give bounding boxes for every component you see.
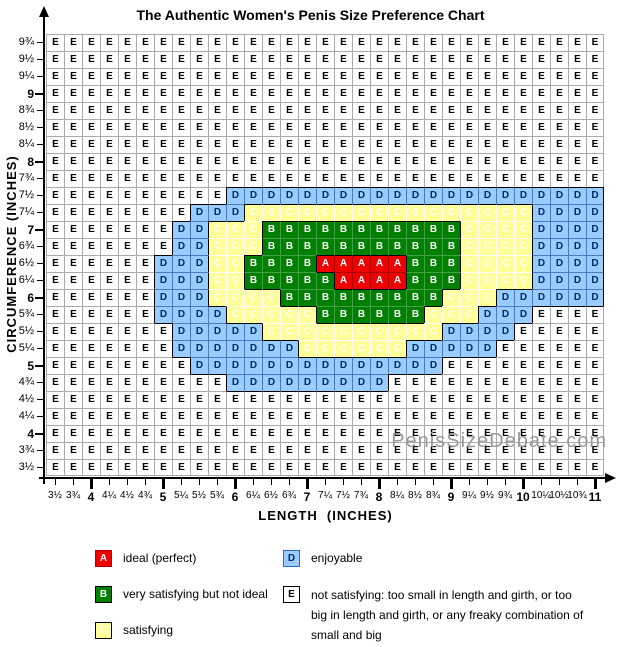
grid-cell: E [136, 442, 154, 459]
legend-label-not-satisfying: not satisfying: too small in length and … [311, 585, 589, 645]
grid-cell: C [460, 255, 478, 272]
grid-cell: E [136, 391, 154, 408]
grid-cell: C [478, 204, 496, 221]
grid-cell: E [316, 459, 334, 476]
grid-cell: E [136, 459, 154, 476]
grid-cell: E [352, 136, 370, 153]
grid-cell: E [82, 221, 100, 238]
grid-cell: E [550, 153, 568, 170]
grid-cell: E [64, 221, 82, 238]
grid-cell: E [442, 170, 460, 187]
grid-cell: E [136, 68, 154, 85]
grid-cell: E [82, 357, 100, 374]
grid-cell: D [370, 187, 388, 204]
grid-cell: E [298, 391, 316, 408]
grid-cell: E [442, 34, 460, 51]
grid-cell: E [82, 68, 100, 85]
grid-cell: E [46, 357, 64, 374]
grid-cell: E [316, 408, 334, 425]
grid-cell: E [496, 85, 514, 102]
grid-cell: D [550, 187, 568, 204]
grid-cell: D [280, 340, 298, 357]
grid-cell: B [280, 238, 298, 255]
grid-cell: E [64, 442, 82, 459]
grid-cell: E [388, 119, 406, 136]
grid-cell: E [370, 119, 388, 136]
grid-cell: E [298, 442, 316, 459]
grid-cell: E [136, 170, 154, 187]
y-tick [37, 331, 44, 332]
x-tick [469, 479, 470, 485]
grid-cell: D [190, 357, 208, 374]
grid-cell: D [226, 204, 244, 221]
grid-cell: E [406, 119, 424, 136]
grid-cell: E [370, 34, 388, 51]
grid-cell: E [316, 68, 334, 85]
grid-cell: E [46, 408, 64, 425]
grid-cell: E [406, 170, 424, 187]
grid-cell: C [460, 238, 478, 255]
grid-cell: E [190, 119, 208, 136]
grid-cell: E [388, 459, 406, 476]
x-tick [162, 479, 165, 489]
grid-cell: E [118, 68, 136, 85]
grid-cell: E [208, 34, 226, 51]
grid-cell: E [118, 170, 136, 187]
grid-cell: D [208, 204, 226, 221]
grid-cell: C [226, 221, 244, 238]
grid-cell: E [154, 374, 172, 391]
grid-cell: E [82, 153, 100, 170]
grid-cell: D [424, 340, 442, 357]
grid-cell: E [244, 425, 262, 442]
grid-cell: B [406, 238, 424, 255]
x-tick [594, 479, 597, 489]
grid-cell: E [460, 119, 478, 136]
y-tick [37, 178, 44, 179]
grid-cell: E [136, 153, 154, 170]
grid-cell: E [172, 187, 190, 204]
grid-cell: B [280, 289, 298, 306]
grid-cell: E [244, 408, 262, 425]
grid-cell: D [532, 289, 550, 306]
grid-cell: C [442, 306, 460, 323]
y-tick [37, 416, 44, 417]
grid-cell: B [406, 221, 424, 238]
grid-cell: E [82, 340, 100, 357]
grid-cell: E [262, 68, 280, 85]
grid-cell: E [262, 85, 280, 102]
grid-cell: E [388, 170, 406, 187]
grid-cell: E [478, 136, 496, 153]
grid-cell: B [298, 289, 316, 306]
grid-cell: B [280, 221, 298, 238]
grid-cell: B [298, 255, 316, 272]
grid-cell: E [496, 51, 514, 68]
grid-cell: E [280, 153, 298, 170]
grid-cell: E [370, 442, 388, 459]
grid-cell: E [82, 51, 100, 68]
grid-cell: E [568, 102, 586, 119]
y-tick-label: 4½ [0, 393, 34, 407]
grid-cell: E [406, 374, 424, 391]
y-tick [35, 93, 44, 95]
grid-cell: E [64, 272, 82, 289]
grid-cell: B [316, 306, 334, 323]
grid-cell: E [64, 425, 82, 442]
grid-cell: E [64, 187, 82, 204]
grid-cell: E [442, 85, 460, 102]
grid-cell: E [172, 102, 190, 119]
grid-cell: B [298, 272, 316, 289]
grid-cell: E [64, 374, 82, 391]
grid-cell: E [442, 136, 460, 153]
grid-cell: E [46, 340, 64, 357]
y-tick [37, 127, 44, 128]
grid-cell: D [478, 340, 496, 357]
y-tick [37, 280, 44, 281]
grid-cell: E [100, 187, 118, 204]
grid-cell: E [460, 459, 478, 476]
grid-cell: B [388, 306, 406, 323]
grid-cell: E [208, 187, 226, 204]
y-tick [35, 433, 44, 435]
grid-cell: E [82, 170, 100, 187]
grid-cell: E [64, 289, 82, 306]
grid-cell: E [100, 34, 118, 51]
grid-cell: E [568, 306, 586, 323]
grid-cell: C [352, 323, 370, 340]
x-tick [145, 479, 146, 485]
grid-cell: C [334, 323, 352, 340]
grid-cell: E [424, 408, 442, 425]
grid-cell: E [496, 459, 514, 476]
grid-cell: E [316, 136, 334, 153]
grid-cell: D [406, 187, 424, 204]
grid-cell: E [190, 102, 208, 119]
grid-cell: A [370, 272, 388, 289]
grid-cell: E [172, 170, 190, 187]
grid-cell: E [460, 85, 478, 102]
grid-cell: E [388, 374, 406, 391]
grid-cell: E [280, 136, 298, 153]
grid-cell: E [46, 238, 64, 255]
grid-cell: E [208, 459, 226, 476]
grid-cell: C [226, 306, 244, 323]
grid-cell: E [478, 408, 496, 425]
grid-cell: E [514, 102, 532, 119]
grid-cell: E [352, 85, 370, 102]
grid-cell: E [478, 170, 496, 187]
grid-cell: E [82, 136, 100, 153]
grid-cell: E [64, 306, 82, 323]
grid-cell: E [550, 119, 568, 136]
grid-cell: E [586, 51, 604, 68]
grid-cell: E [532, 170, 550, 187]
grid-cell: E [100, 425, 118, 442]
grid-cell: E [532, 85, 550, 102]
y-tick-label: 3¾ [0, 444, 34, 458]
grid-cell: E [532, 391, 550, 408]
grid-cell: D [586, 255, 604, 272]
grid-cell: D [460, 340, 478, 357]
grid-cell: E [370, 425, 388, 442]
grid-cell: E [568, 323, 586, 340]
grid-cell: E [568, 68, 586, 85]
x-tick [415, 479, 416, 485]
grid-cell: E [46, 374, 64, 391]
grid-cell: E [388, 85, 406, 102]
y-tick-label: 4¼ [0, 410, 34, 424]
grid-cell: D [460, 323, 478, 340]
grid-cell: E [100, 204, 118, 221]
grid-cell: E [154, 425, 172, 442]
grid-cell: E [208, 102, 226, 119]
grid-cell: E [298, 119, 316, 136]
grid-cell: E [46, 119, 64, 136]
grid-cell: E [550, 136, 568, 153]
watermark: PenisSizeDebate.com [391, 430, 607, 453]
grid-cell: C [352, 204, 370, 221]
grid-cell: E [334, 136, 352, 153]
grid-cell: E [82, 289, 100, 306]
grid-cell: E [514, 68, 532, 85]
grid-cell: E [460, 170, 478, 187]
grid-cell: B [262, 255, 280, 272]
grid-cell: E [406, 153, 424, 170]
grid-cell: E [244, 102, 262, 119]
grid-cell: E [568, 119, 586, 136]
legend-label-enjoyable: enjoyable [311, 550, 362, 567]
grid-cell: E [586, 85, 604, 102]
grid-cell: E [118, 153, 136, 170]
grid-cell: D [298, 374, 316, 391]
grid-cell: E [550, 357, 568, 374]
y-tick-label: 8¾ [0, 104, 34, 118]
grid-cell: E [532, 459, 550, 476]
grid-cell: E [442, 153, 460, 170]
grid-cell: E [82, 255, 100, 272]
grid-cell: E [514, 459, 532, 476]
y-tick [37, 450, 44, 451]
grid-cell: E [280, 459, 298, 476]
grid-cell: E [424, 51, 442, 68]
grid-cell: E [118, 51, 136, 68]
grid-cell: E [550, 374, 568, 391]
grid-cell: C [478, 255, 496, 272]
legend-swatch-d: D [283, 550, 300, 567]
grid-cell: C [460, 204, 478, 221]
y-tick [37, 382, 44, 383]
grid-cell: D [388, 357, 406, 374]
grid-cell: C [478, 289, 496, 306]
grid-cell: E [406, 85, 424, 102]
grid-cell: E [424, 102, 442, 119]
y-tick [37, 314, 44, 315]
grid-cell: E [136, 187, 154, 204]
grid-cell: B [424, 272, 442, 289]
grid-cell: C [316, 204, 334, 221]
grid-cell: E [496, 136, 514, 153]
grid-cell: E [298, 425, 316, 442]
grid-cell: E [100, 391, 118, 408]
grid-cell: E [154, 238, 172, 255]
grid-cell: E [478, 51, 496, 68]
grid-cell: E [190, 170, 208, 187]
grid-cell: E [298, 408, 316, 425]
grid-cell: C [460, 272, 478, 289]
grid-cell: E [190, 136, 208, 153]
grid-cell: B [352, 221, 370, 238]
y-tick-label: 9¼ [0, 70, 34, 84]
grid-cell: E [262, 136, 280, 153]
grid-cell: D [190, 255, 208, 272]
grid-cell: D [514, 306, 532, 323]
grid-cell: C [424, 204, 442, 221]
grid-cell: C [424, 306, 442, 323]
grid-cell: E [352, 170, 370, 187]
grid-cell: E [334, 170, 352, 187]
grid-cell: E [46, 255, 64, 272]
grid-cell: E [298, 459, 316, 476]
grid-cell: E [82, 187, 100, 204]
grid-cell: D [172, 221, 190, 238]
grid-cell: E [586, 408, 604, 425]
x-axis-arrow-right-icon [605, 473, 616, 483]
grid-cell: D [532, 187, 550, 204]
legend-label-ideal: ideal (perfect) [123, 550, 196, 567]
grid-cell: E [64, 459, 82, 476]
grid-cell: E [568, 170, 586, 187]
grid-cell: C [262, 306, 280, 323]
grid-cell: E [100, 340, 118, 357]
grid-cell: E [46, 85, 64, 102]
grid-cell: C [208, 238, 226, 255]
grid-cell: B [424, 238, 442, 255]
grid-cell: E [46, 221, 64, 238]
grid-cell: B [298, 221, 316, 238]
grid-cell: E [118, 289, 136, 306]
grid-cell: E [190, 442, 208, 459]
grid-cell: D [514, 187, 532, 204]
grid-cell: E [262, 408, 280, 425]
grid-cell: B [244, 272, 262, 289]
grid-cell: E [190, 187, 208, 204]
grid-cell: E [82, 306, 100, 323]
grid-cell: E [514, 357, 532, 374]
y-tick-label: 9¾ [0, 36, 34, 50]
y-tick [37, 263, 44, 264]
grid-cell: C [370, 340, 388, 357]
grid-cell: E [514, 323, 532, 340]
grid-cell: D [496, 323, 514, 340]
grid-cell: E [136, 85, 154, 102]
grid-cell: C [316, 340, 334, 357]
grid-cell: E [136, 323, 154, 340]
grid-cell: E [46, 68, 64, 85]
grid-cell: E [46, 442, 64, 459]
grid-cell: B [442, 221, 460, 238]
grid-cell: C [208, 289, 226, 306]
grid-cell: D [388, 187, 406, 204]
grid-cell: E [568, 51, 586, 68]
grid-cell: E [208, 85, 226, 102]
grid-cell: E [154, 153, 172, 170]
grid-cell: B [244, 255, 262, 272]
grid-cell: E [136, 102, 154, 119]
grid-cell: B [262, 221, 280, 238]
grid-cell: D [586, 204, 604, 221]
grid-cell: E [532, 374, 550, 391]
grid-cell: E [118, 408, 136, 425]
y-tick-label: 4 [0, 427, 34, 441]
grid-cell: E [118, 306, 136, 323]
grid-cell: D [352, 357, 370, 374]
grid-cell: D [424, 357, 442, 374]
grid-cell: E [550, 85, 568, 102]
grid-cell: E [82, 102, 100, 119]
y-tick-label: 9 [0, 87, 34, 101]
grid-cell: D [352, 374, 370, 391]
y-tick [37, 348, 44, 349]
grid-cell: C [244, 289, 262, 306]
grid-cell: C [406, 323, 424, 340]
grid-cell: C [388, 340, 406, 357]
grid-cell: E [316, 153, 334, 170]
grid-cell: E [334, 119, 352, 136]
grid-cell: D [532, 272, 550, 289]
grid-cell: B [388, 221, 406, 238]
grid-cell: E [154, 221, 172, 238]
grid-cell: D [496, 187, 514, 204]
grid-cell: D [586, 289, 604, 306]
grid-cell: E [136, 51, 154, 68]
grid-cell: E [226, 136, 244, 153]
grid-cell: E [496, 374, 514, 391]
grid-cell: E [82, 272, 100, 289]
grid-cell: E [172, 425, 190, 442]
grid-cell: E [46, 51, 64, 68]
grid-cell: E [118, 374, 136, 391]
grid-cell: D [568, 255, 586, 272]
grid-cell: D [496, 306, 514, 323]
grid-cell: E [460, 357, 478, 374]
grid-cell: E [64, 357, 82, 374]
grid-cell: C [280, 204, 298, 221]
grid-cell: E [190, 51, 208, 68]
grid-cell: E [334, 34, 352, 51]
grid-cell: D [226, 323, 244, 340]
grid-cell: B [280, 272, 298, 289]
grid-cell: E [316, 442, 334, 459]
x-tick [522, 479, 525, 489]
grid-cell: E [514, 85, 532, 102]
grid-cell: D [532, 204, 550, 221]
grid-cell: E [568, 34, 586, 51]
grid-cell: D [244, 374, 262, 391]
grid-cell: A [334, 272, 352, 289]
grid-cell: B [424, 255, 442, 272]
grid-cell: D [532, 255, 550, 272]
grid-cell: C [208, 255, 226, 272]
grid-cell: E [316, 102, 334, 119]
grid-cell: C [226, 289, 244, 306]
grid-cell: B [352, 238, 370, 255]
grid-cell: E [118, 238, 136, 255]
grid-cell: E [370, 408, 388, 425]
grid-cell: E [118, 119, 136, 136]
penis-size-preference-chart: The Authentic Women's Penis Size Prefere… [0, 0, 621, 647]
